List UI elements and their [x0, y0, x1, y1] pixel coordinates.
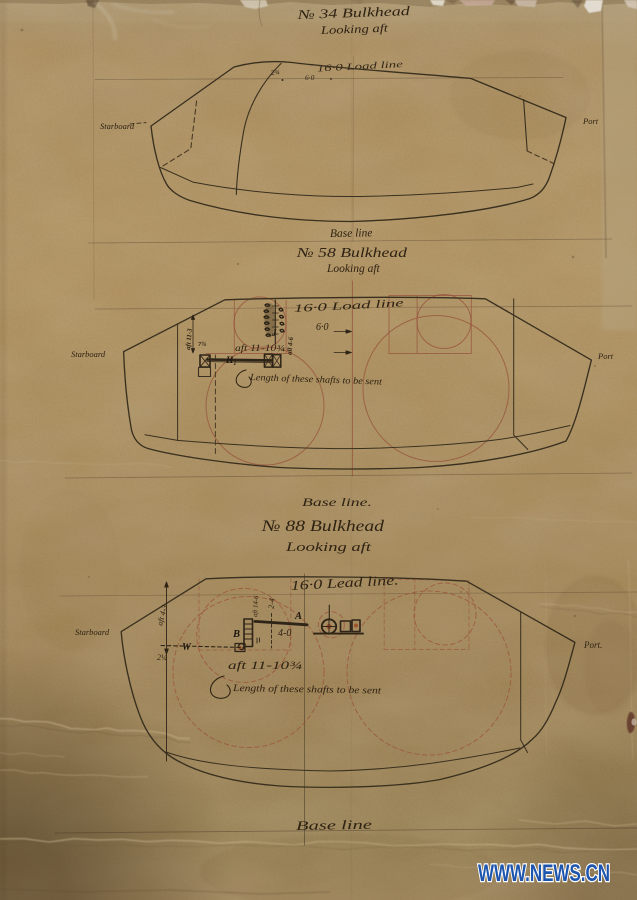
svg-text:Looking aft: Looking aft: [285, 539, 372, 554]
svg-text:aft 11-10¾: aft 11-10¾: [235, 343, 285, 354]
svg-text:J: J: [271, 328, 277, 338]
svg-text:H₁: H₁: [225, 356, 237, 366]
svg-text:№ 58 Bulkhead: № 58 Bulkhead: [296, 245, 408, 260]
svg-text:6·0: 6·0: [316, 322, 329, 333]
svg-text:Base line.: Base line.: [302, 497, 372, 509]
svg-text:Starboard: Starboard: [71, 349, 106, 359]
svg-text:Starboard: Starboard: [100, 121, 135, 131]
svg-text:2-4: 2-4: [267, 598, 277, 609]
svg-text:Port: Port: [597, 351, 614, 361]
svg-text:Looking aft: Looking aft: [326, 263, 381, 275]
svg-text:Port: Port: [582, 116, 599, 126]
svg-text:WWW.NEWS.CN: WWW.NEWS.CN: [478, 860, 610, 887]
svg-text:6·0: 6·0: [305, 73, 315, 82]
svg-text:W: W: [182, 642, 192, 653]
svg-text:B: B: [232, 629, 240, 640]
svg-text:7¾: 7¾: [198, 341, 206, 348]
svg-text:№ 88 Bulkhead: № 88 Bulkhead: [261, 518, 385, 535]
svg-text:Looking aft: Looking aft: [319, 23, 389, 37]
svg-text:A: A: [294, 611, 302, 622]
svg-text:aft 14-6: aft 14-6: [252, 595, 260, 617]
svg-text:Base line: Base line: [330, 227, 373, 240]
svg-text:aft 11-10¾: aft 11-10¾: [228, 660, 303, 672]
svg-text:2¼: 2¼: [157, 653, 167, 662]
svg-text:4-0: 4-0: [278, 628, 291, 639]
